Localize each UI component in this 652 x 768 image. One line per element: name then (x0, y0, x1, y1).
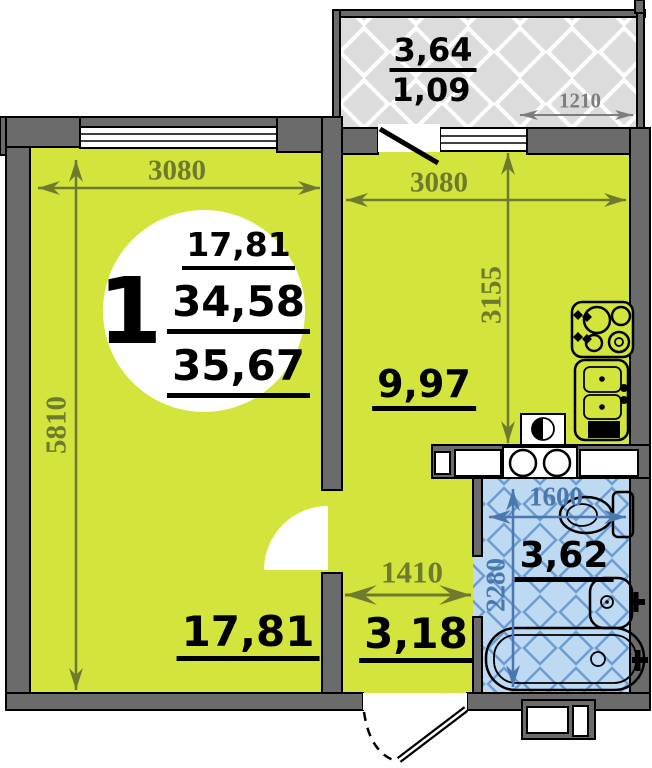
area-label-bathroom: 3,62 (515, 538, 614, 582)
washing-machine-icon (521, 414, 565, 445)
balcony-wall-right (637, 10, 644, 131)
dim-label-bathroom-width: 1600 (529, 484, 583, 511)
dim-label-living-height: 5810 (43, 396, 72, 454)
entrance-door (363, 693, 467, 761)
balcony-wall-top (333, 10, 645, 17)
unit-number: 1 (98, 258, 162, 365)
vent-shaft-ducts (527, 706, 588, 736)
kitchen-counter (435, 447, 638, 478)
badge-total-area: 34,58 (167, 277, 310, 334)
dim-label-bathroom-height: 2280 (483, 558, 510, 612)
wall-top-left (6, 117, 80, 147)
balcony-wall-left (333, 10, 340, 126)
dim-label-living-width: 3080 (148, 157, 206, 186)
badge-living-area: 17,81 (182, 225, 294, 270)
dim-label-kitchen-width: 3080 (410, 169, 468, 198)
living-window (80, 127, 277, 148)
wall-bottom-left (6, 693, 363, 710)
area-label-living: 17,81 (177, 611, 320, 661)
dim-label-kitchen-height: 3155 (478, 266, 507, 324)
area-label-hall: 3,18 (359, 613, 473, 663)
unit-badge: 1 17,81 34,58 35,67 (103, 210, 305, 412)
wall-bathroom-west-upper (473, 478, 482, 556)
badge-overall-area: 35,67 (167, 341, 310, 398)
wall-partition-lower (322, 573, 342, 710)
kitchen-window (440, 128, 527, 151)
wall-partition-upper (322, 117, 342, 490)
area-label-kitchen: 9,97 (372, 365, 476, 411)
wall-bathroom-west-lower (473, 617, 482, 693)
balcony-wall-stub (635, 0, 644, 13)
floor-plan: 3080 5810 3080 3155 1410 1210 1600 2280 … (0, 0, 652, 768)
wall-right (630, 128, 650, 710)
floor-plan-drawing (0, 0, 652, 768)
dim-label-balcony-width: 1210 (559, 91, 601, 112)
dim-label-hall-width: 1410 (381, 557, 443, 588)
area-label-balcony-coef: 1,09 (392, 74, 471, 106)
stove-icon (572, 302, 633, 357)
wall-left (6, 117, 30, 710)
area-label-balcony-total: 3,64 (390, 34, 477, 72)
